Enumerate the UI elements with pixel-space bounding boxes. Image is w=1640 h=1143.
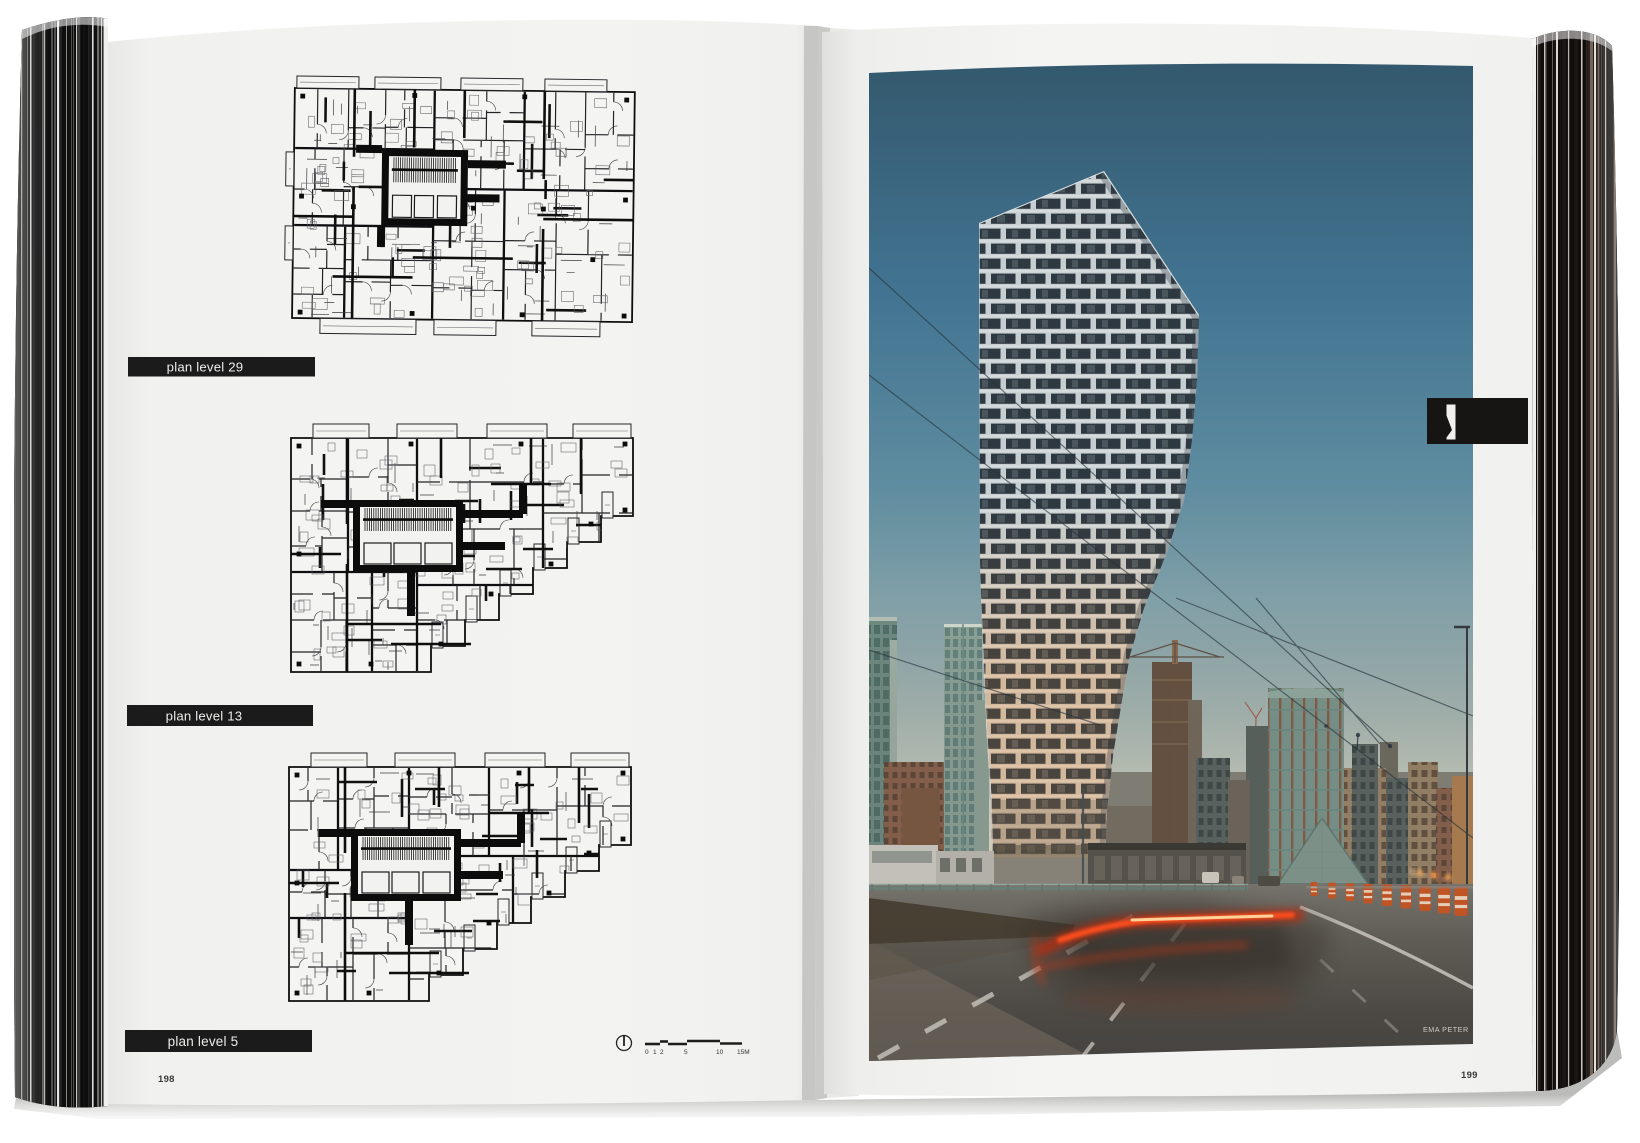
svg-text:plan level 29: plan level 29 [167,360,244,375]
svg-text:plan level 13: plan level 13 [166,709,243,724]
svg-text:0: 0 [645,1049,649,1056]
svg-text:199: 199 [1461,1070,1478,1081]
svg-text:2: 2 [660,1049,664,1056]
svg-text:10: 10 [716,1049,724,1056]
svg-text:5: 5 [684,1049,688,1056]
svg-text:198: 198 [158,1074,175,1085]
svg-text:plan level 5: plan level 5 [168,1034,239,1049]
svg-text:EMA PETER: EMA PETER [1423,1025,1469,1034]
svg-text:1: 1 [653,1049,657,1056]
svg-text:15M: 15M [737,1049,750,1056]
